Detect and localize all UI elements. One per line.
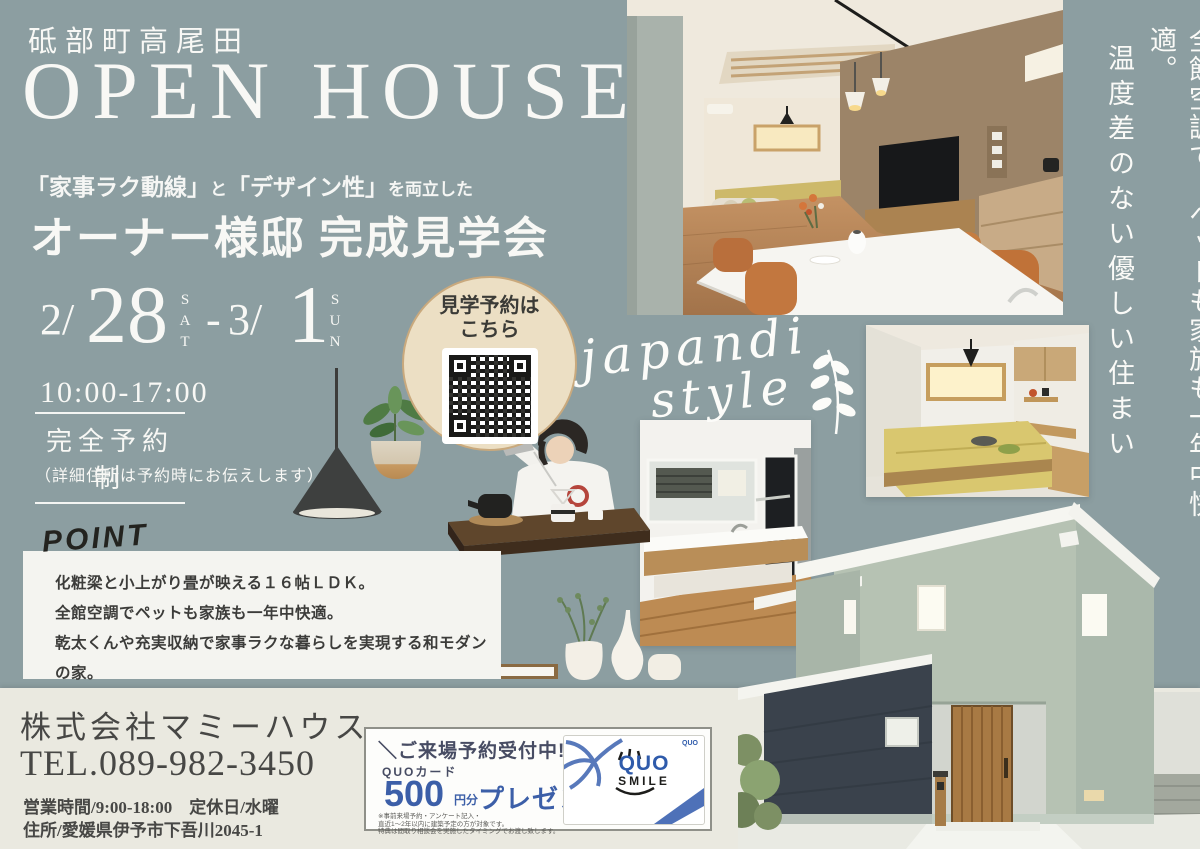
fine-print-line-2: 直近1～2年以内に建築予定の方が対象です。 — [378, 821, 559, 829]
photo-house-exterior — [738, 492, 1200, 849]
subtitle-part-3: 「デザイン性」 — [227, 175, 388, 200]
photo-ldk-interior — [627, 0, 1063, 315]
company-hours: 営業時間/9:00-18:00 定休日/水曜 — [23, 793, 279, 818]
fine-print-line-3: 特典は間取り相談会を実施したタイミングでお渡し致します。 — [378, 828, 559, 836]
event-title: オーナー様邸 完成見学会 — [30, 202, 549, 266]
date-separator: - — [206, 294, 221, 345]
date-end-day: 1 — [288, 268, 329, 362]
subtitle-part-2: と — [210, 180, 227, 199]
quo-smile-label: SMILE — [614, 774, 674, 788]
campaign-headline: ＼ご来場予約受付中!／ — [378, 736, 585, 763]
quo-card-image: QUO SMILE QUO — [563, 735, 705, 825]
company-name: 株式会社マミーハウス — [20, 702, 369, 747]
date-start-day: 28 — [86, 268, 168, 362]
quo-mini-mark: QUO — [682, 740, 698, 747]
date-end-month: 3/ — [228, 294, 262, 345]
vases-image — [488, 592, 684, 686]
point-line-2: 全館空調でペットも家族も一年中快適。 — [55, 599, 501, 629]
date-end-weekday: SUN — [326, 292, 343, 362]
point-line-3: 乾太くんや充実収納で家事ラクな暮らしを実現する和モダンの家。 — [55, 629, 501, 689]
vertical-copy-line2: 温度差のない優しい住まい — [1100, 44, 1139, 484]
address-note: （詳細住所は予約時にお伝えします） — [35, 462, 324, 486]
subtitle: 「家事ラク動線」と「デザイン性」を両立した — [26, 168, 473, 202]
quo-logo: QUO SMILE — [614, 754, 674, 788]
flyer-root: 砥部町高尾田 OPEN HOUSE 「家事ラク動線」と「デザイン性」を両立した … — [0, 0, 1200, 849]
subtitle-part-4: を両立した — [388, 180, 473, 199]
qr-reservation-badge: 見学予約は こちら — [402, 276, 577, 451]
point-line-1: 化粧梁と小上がり畳が映える１６帖ＬＤＫ。 — [55, 569, 501, 599]
subtitle-part-1: 「家事ラク動線」 — [26, 175, 210, 200]
point-box: 化粧梁と小上がり畳が映える１６帖ＬＤＫ。 全館空調でペットも家族も一年中快適。 … — [23, 551, 501, 679]
campaign-amount: 500 — [384, 773, 444, 815]
campaign-box: ＼ご来場予約受付中!／ QUOカード 500 円分 プレゼント ※事前来場予約・… — [364, 727, 712, 831]
qr-finder-icon — [449, 415, 471, 437]
qr-label-line1: 見学予約は — [404, 294, 575, 318]
qr-finder-icon — [449, 355, 471, 377]
fine-print-line-1: ※事前来場予約・アンケート記入・ — [378, 813, 559, 821]
reservation-label: 完全予約制 — [35, 412, 185, 504]
company-address: 住所/愛媛県伊予市下吾川2045-1 — [23, 816, 263, 841]
qr-code — [442, 348, 538, 444]
photo-tatami-room — [866, 325, 1089, 497]
campaign-fine-print: ※事前来場予約・アンケート記入・ 直近1～2年以内に建築予定の方が対象です。 特… — [378, 813, 559, 836]
vertical-copy-line1: 全館空調で、ペットも家族も一年中快適。 — [1142, 26, 1200, 566]
qr-finder-icon — [509, 355, 531, 377]
campaign-unit: 円分 — [454, 791, 478, 808]
leaf-icon — [806, 346, 860, 441]
quo-brand-label: QUO — [614, 754, 674, 774]
qr-label-line2: こちら — [404, 318, 575, 342]
page-title: OPEN HOUSE — [22, 44, 640, 138]
date-start-weekday: SAT — [176, 292, 193, 362]
date-start-month: 2/ — [40, 294, 74, 345]
event-hours: 10:00-17:00 — [40, 376, 209, 410]
company-tel: TEL.089-982-3450 — [20, 742, 315, 784]
